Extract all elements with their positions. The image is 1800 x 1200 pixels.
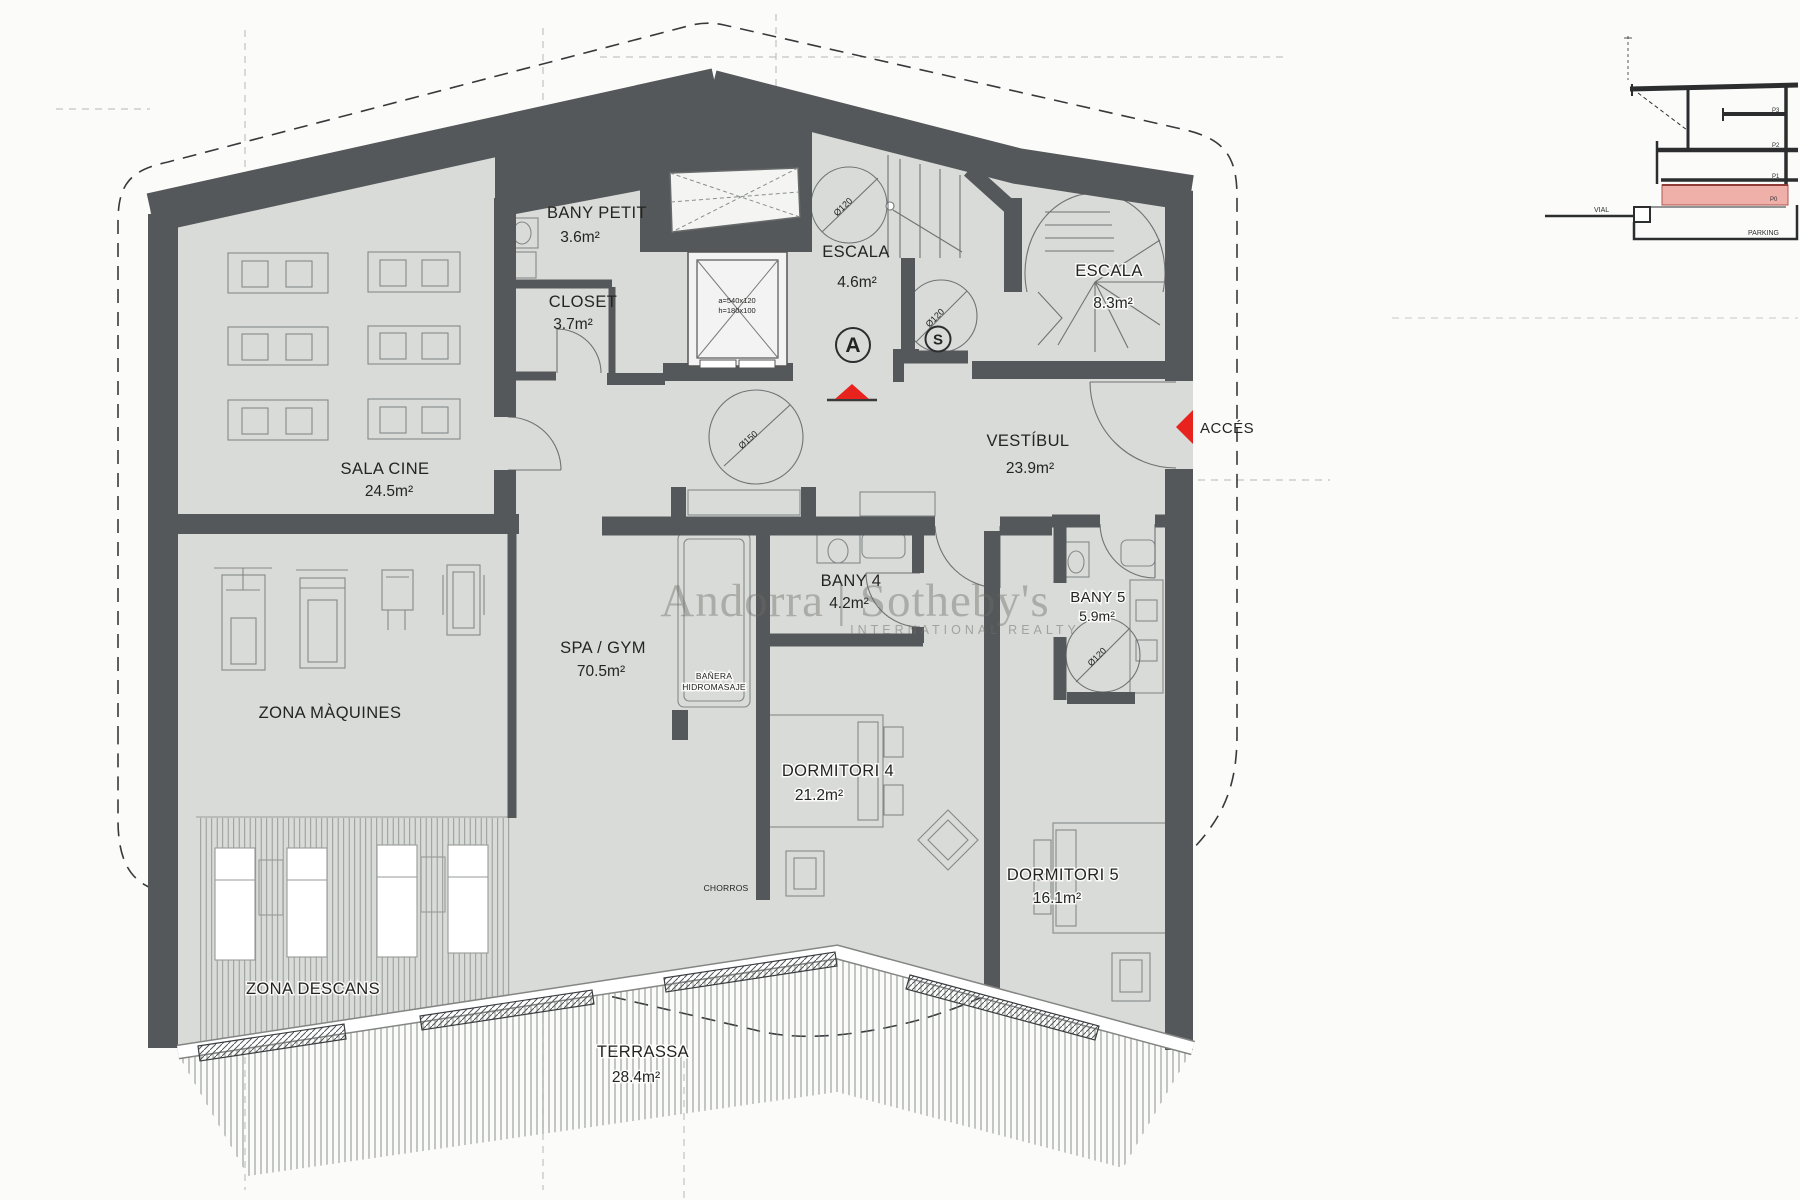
- section-floor-label-2: P2: [1772, 143, 1780, 149]
- acces-label: ACCÉS: [1200, 420, 1254, 437]
- room-label-bany-5: BANY 5: [1070, 589, 1126, 606]
- elevator-dim-1: a=540x120: [718, 296, 755, 305]
- watermark-main: Andorra | Sotheby's: [660, 575, 1049, 627]
- room-label-sala-cine: SALA CINE: [341, 460, 430, 478]
- room-label-bany-petit: BANY PETIT: [547, 204, 647, 222]
- floor-plan-page: a=540x120 h=180x100 A S SALA CINE 24.5m²…: [0, 0, 1800, 1200]
- section-vial-label: VIAL: [1594, 207, 1609, 214]
- room-label-zona-maquines: ZONA MÀQUINES: [259, 703, 402, 722]
- banyera-label-2: HIDROMASAJE: [682, 682, 746, 692]
- section-inset: VIAL PARKING P3 P2 P1 P0: [1545, 36, 1798, 239]
- section-parking-label: PARKING: [1748, 230, 1779, 237]
- floor-plan-drawing: a=540x120 h=180x100 A S SALA CINE 24.5m²…: [0, 0, 1800, 1200]
- room-label-spa-gym: SPA / GYM: [560, 639, 646, 657]
- stair-badge-s: S: [933, 332, 943, 349]
- room-area-escala-b: 8.3m²: [1093, 295, 1133, 312]
- room-area-sala-cine: 24.5m²: [365, 483, 413, 500]
- banyera-label-1: BAÑERA: [696, 671, 732, 681]
- room-area-escala-a: 4.6m²: [837, 274, 877, 291]
- room-label-dormitori-4: DORMITORI 4: [782, 762, 894, 780]
- elevator: a=540x120 h=180x100: [688, 252, 787, 368]
- watermark-sub: INTERNATIONAL REALTY: [850, 623, 1080, 637]
- room-area-terrassa: 28.4m²: [612, 1069, 660, 1086]
- room-area-dormitori-5: 16.1m²: [1033, 890, 1081, 907]
- chorros-label: CHORROS: [704, 883, 749, 893]
- room-area-bany-petit: 3.6m²: [560, 229, 600, 246]
- stair-badge-a: A: [845, 334, 860, 357]
- room-label-escala-a: ESCALA: [822, 243, 890, 261]
- room-label-dormitori-5: DORMITORI 5: [1007, 866, 1119, 884]
- room-label-vestibul: VESTÍBUL: [987, 431, 1070, 450]
- room-label-zona-descans: ZONA DESCANS: [246, 980, 380, 998]
- elevator-dim-2: h=180x100: [718, 306, 755, 315]
- room-label-escala-b: ESCALA: [1075, 262, 1143, 280]
- section-floor-label-3: P3: [1772, 108, 1780, 114]
- room-label-terrassa: TERRASSA: [597, 1043, 689, 1061]
- room-area-vestibul: 23.9m²: [1006, 460, 1054, 477]
- room-area-bany-5: 5.9m²: [1079, 608, 1115, 624]
- section-floor-label-1: P1: [1772, 174, 1780, 180]
- room-area-dormitori-4: 21.2m²: [795, 787, 843, 804]
- room-area-closet: 3.7m²: [553, 316, 593, 333]
- section-floor-label-0: P0: [1770, 197, 1778, 203]
- room-label-closet: CLOSET: [549, 293, 617, 311]
- room-area-spa-gym: 70.5m²: [577, 663, 625, 680]
